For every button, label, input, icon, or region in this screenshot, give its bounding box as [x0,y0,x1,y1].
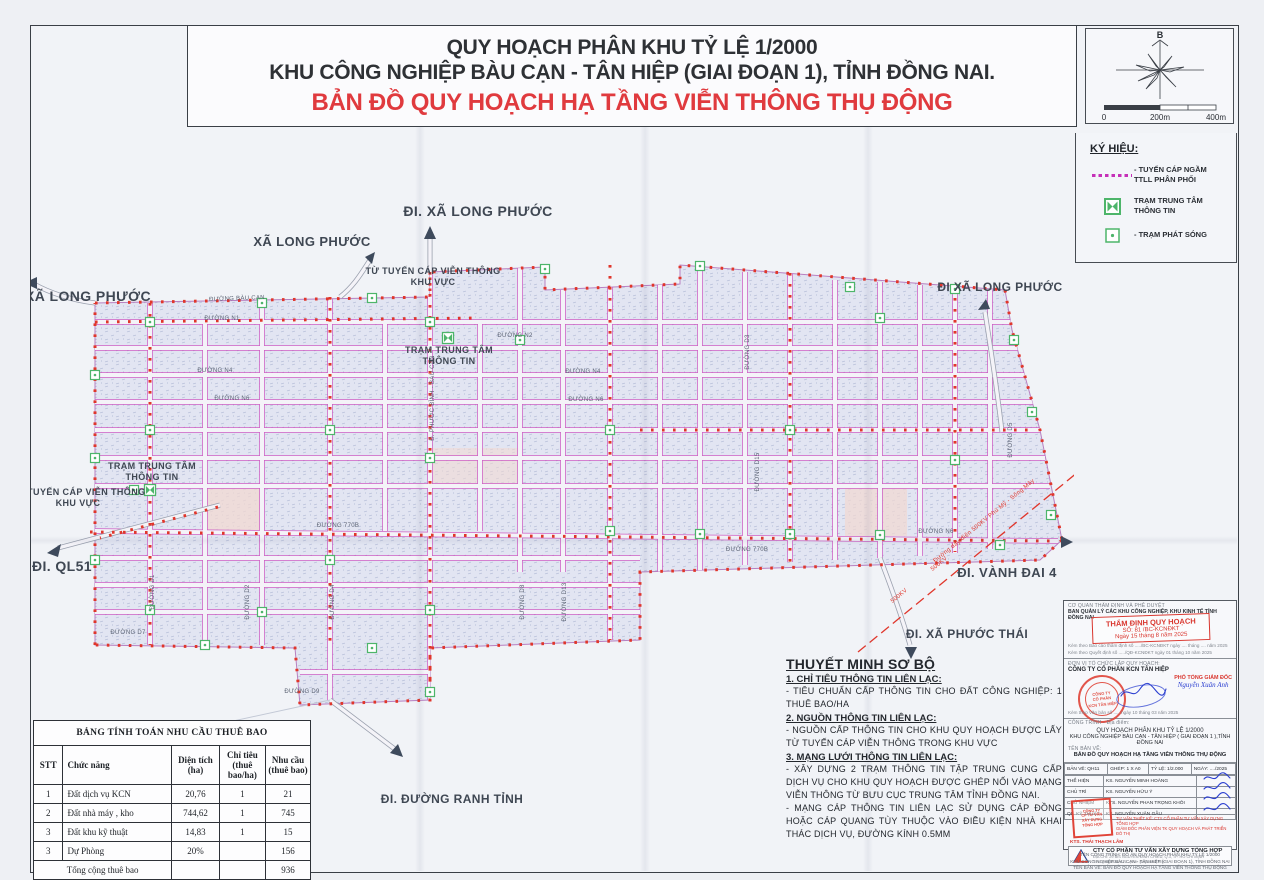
organizer-note: Kèm theo Văn bản số ..... ngày 10 tháng … [1068,710,1178,717]
title-line1: QUY HOẠCH PHÂN KHU TỶ LỆ 1/2000 [447,35,818,60]
cell: 1 [219,785,265,804]
legend-title: KÝ HIỆU: [1090,143,1236,155]
organizer-section: ĐƠN VỊ TỔ CHỨC LẬP QUY HOẠCH: CÔNG TY CỔ… [1064,659,1236,719]
area-label: XÃ LONG PHƯỚC [31,287,151,304]
cell: 20,76 [172,785,219,804]
cell: 156 [266,842,311,861]
cell: 1 [219,804,265,823]
notes-heading-1: 1. CHỈ TIÊU THÔNG TIN LIÊN LẠC: [786,674,1062,685]
central-station-icon [145,485,156,496]
notes-heading-3: 3. MẠNG LƯỚI THÔNG TIN LIÊN LẠC: [786,752,1062,763]
total-value: 936 [266,861,311,880]
svg-text:ĐƯỜNG D9: ĐƯỜNG D9 [284,688,320,695]
drawing-name: BẢN ĐỒ QUY HOẠCH HẠ TẦNG VIỄN THÔNG THỤ … [1068,752,1232,758]
compass-scale-box: B 0 200m 400m [1085,28,1234,124]
staff-role: CHỦ TRÌ [1065,787,1104,798]
legend-item-central-station: TRẠM TRUNG TÂM THÔNG TIN [1090,196,1236,216]
dest-label: ĐI XÃ LONG PHƯỚC [937,279,1062,294]
footer-project-name: TÊN CÔNG TRÌNH: ĐỒ ÁN QUY HOẠCH PHÂN KHU… [1063,852,1237,859]
area-label: XÃ LONG PHƯỚC [253,234,371,249]
legend-item-cable: - TUYẾN CÁP NGẦM TTLL PHÂN PHỐI [1090,165,1236,185]
svg-text:ĐƯỜNG N1: ĐƯỜNG N1 [204,315,240,322]
staff-name: KTS. NGUYỄN PHAN TRỌNG KHÔI [1104,798,1197,809]
cell: Đất khu kỹ thuật [63,823,172,842]
subscriber-demand-table: BẢNG TÍNH TOÁN NHU CẦU THUÊ BAO STT Chức… [33,720,311,880]
cell [219,842,265,861]
svg-text:ĐƯỜNG D13: ĐƯỜNG D13 [561,582,568,621]
footer-drawing-name: TÊN BẢN VẼ: BẢN ĐỒ QUY HOẠCH HẠ TẦNG VIỄ… [1063,865,1237,872]
cell: 1 [219,823,265,842]
consultant-line1: TƯ VẤN THIẾT KẾ: CTY CỔ PHẦN TƯ VẤN XÂY … [1116,816,1232,826]
svg-text:ĐƯỜNG D1: ĐƯỜNG D1 [149,574,156,610]
cell: 20% [172,842,219,861]
svg-text:ĐƯỜNG N6: ĐƯỜNG N6 [568,396,604,403]
cable-source-label: KHU VỰC [411,277,456,287]
col-header-demand: Nhu cầu (thuê bao) [266,746,311,785]
col-header-quota: Chỉ tiêu (thuê bao/ha) [219,746,265,785]
signer-name: Nguyễn Xuân Anh [1174,681,1232,689]
cell: Dự Phòng [63,842,172,861]
scale-tick-200: 200m [1150,113,1170,122]
cable-source-label: KHU VỰC [56,498,101,508]
project-caption: CÔNG TRÌNH - Địa điểm: [1068,720,1232,726]
central-station-icon [1104,198,1121,215]
table-row: 3 Đất khu kỹ thuật 14,83 1 15 [34,823,311,842]
cell: 1 [34,785,63,804]
drawing-title: BẢN ĐỒ QUY HOẠCH HẠ TẦNG VIỄN THÔNG THỤ … [311,89,952,117]
title-block-footer: TÊN CÔNG TRÌNH: ĐỒ ÁN QUY HOẠCH PHÂN KHU… [1063,852,1237,872]
legend-box: KÝ HIỆU: - TUYẾN CÁP NGẦM TTLL PHÂN PHỐI… [1075,133,1237,263]
approval-section: CƠ QUAN THẨM ĐỊNH VÀ PHÊ DUYỆT BAN QUẢN … [1064,601,1236,659]
svg-text:ĐƯỜNG D8: ĐƯỜNG D8 [519,584,526,620]
dest-label: ĐI. XÃ PHƯỚC THÁI [906,626,1028,641]
notes-body-2: - NGUỒN CẤP THÔNG TIN CHO KHU QUY HOẠCH … [786,724,1062,750]
preliminary-notes: THUYẾT MINH SƠ BỘ 1. CHỈ TIÊU THÔNG TIN … [786,656,1062,841]
approval-stamp: THẨM ĐỊNH QUY HOẠCH SỐ: 81 /BC-KCNĐKT Ng… [1092,613,1211,644]
notes-body-3b: - MẠNG CÁP THÔNG TIN LIÊN LẠC SỬ DỤNG CÁ… [786,802,1062,841]
consultant-square-stamp: CÔNG TY CP TƯ VẤN XÂY DỰNG TỔNG HỢP [1071,798,1114,839]
cell: 3 [34,842,63,861]
consultant-signer: KTS. THÁI THẠCH LÂM [1070,840,1232,845]
staff-role: THỂ HIỆN [1065,776,1104,787]
cell: Đất dịch vụ KCN [63,785,172,804]
cell [219,861,265,880]
signature-scribble [1118,681,1168,703]
cell: Đất nhà máy , kho [63,804,172,823]
cell: 744,62 [172,804,219,823]
dest-label: ĐI. XÃ LONG PHƯỚC [403,202,552,219]
planning-map-sheet: Đường dây điện 500KV Phú Mỹ - Sông Mây 5… [0,0,1264,880]
legend-item-label: - TRẠM PHÁT SÓNG [1134,230,1207,240]
svg-text:ĐƯỜNG D7: ĐƯỜNG D7 [110,629,146,636]
central-station-label: TRẠM TRUNG TÂM [405,344,493,355]
notes-heading-2: 2. NGUỒN THÔNG TIN LIÊN LẠC: [786,713,1062,724]
dest-label: ĐI. VÀNH ĐAI 4 [957,565,1057,580]
staff-signatures [1200,771,1234,815]
svg-text:ĐƯỜNG 770B: ĐƯỜNG 770B [317,522,359,529]
table-row: 2 Đất nhà máy , kho 744,62 1 745 [34,804,311,823]
cable-source-label: TỪ TUYẾN CÁP VIỄN THÔNG [31,486,146,497]
central-station-icon [443,333,454,344]
dest-label: ĐI. ĐƯỜNG RANH TỈNH [381,791,523,806]
central-station-label: TRẠM TRUNG TÂM [108,460,196,471]
central-station-label: THÔNG TIN [125,471,178,482]
cell: 745 [266,804,311,823]
approval-notes: Kèm theo Báo cáo thẩm định số ...../BC-K… [1068,643,1234,657]
staff-name: KS. NGUYỄN MINH HOÀNG [1104,776,1197,787]
project-section: CÔNG TRÌNH - Địa điểm: QUY HOẠCH PHÂN KH… [1064,719,1236,763]
legend-item-broadcast-station: - TRẠM PHÁT SÓNG [1090,228,1236,243]
title-line2: KHU CÔNG NGHIỆP BÀU CẠN - TÂN HIỆP (GIAI… [269,60,995,85]
svg-text:ĐƯỜNG D4: ĐƯỜNG D4 [329,584,336,620]
approval-note-1: Kèm theo Báo cáo thẩm định số ...../BC-K… [1068,643,1234,650]
approval-note-2: Kèm theo Quyết định số ...../QĐ-KCNĐKT n… [1068,650,1234,657]
col-header-function: Chức năng [63,746,172,785]
cell: 15 [266,823,311,842]
table-total-row: Tổng cộng thuê bao 936 [34,861,311,880]
dest-label: ĐI. QL51 [32,558,92,574]
consultant-section: CÔNG TY CP TƯ VẤN XÂY DỰNG TỔNG HỢP TƯ V… [1064,815,1236,849]
notes-title: THUYẾT MINH SƠ BỘ [786,656,1062,672]
cell [172,861,219,880]
north-label: B [1157,30,1164,40]
compass-rose-icon: B 0 200m 400m [1086,29,1233,123]
project-line2: KHU CÔNG NGHIỆP BÀU CẠN - TÂN HIỆP ( GIA… [1068,734,1232,746]
cell: 2 [34,804,63,823]
col-header-area: Diện tích (ha) [172,746,219,785]
title-block: CƠ QUAN THẨM ĐỊNH VÀ PHÊ DUYỆT BAN QUẢN … [1063,600,1237,850]
table-row: 3 Dự Phòng 20% 156 [34,842,311,861]
svg-text:ĐƯỜNG N6: ĐƯỜNG N6 [918,528,954,535]
notes-body-3a: - XÂY DỰNG 2 TRẠM THÔNG TIN TẬP TRUNG CU… [786,763,1062,802]
cell: 14,83 [172,823,219,842]
cable-line-swatch [1092,174,1132,177]
cable-source-label: TỪ TUYẾN CÁP VIỄN THÔNG [365,265,500,276]
sheet-no: BẢN VẼ: QH11 [1065,764,1108,775]
organizer-name: CÔNG TY CỔ PHẦN KCN TÂN HIỆP [1068,667,1232,673]
broadcast-station-icon [1105,228,1120,243]
sheet-layout: GHÉP: 1 X A0 [1108,764,1149,775]
svg-text:ĐƯỜNG 770B: ĐƯỜNG 770B [726,546,768,553]
svg-text:ĐƯỜNG N2: ĐƯỜNG N2 [497,332,533,339]
scale-tick-400: 400m [1206,113,1226,122]
central-station-label: THÔNG TIN [422,355,475,366]
svg-text:ĐƯỜNG D5: ĐƯỜNG D5 [1007,422,1014,458]
scale-tick-0: 0 [1102,113,1107,122]
legend-item-label: TRẠM TRUNG TÂM THÔNG TIN [1134,196,1203,216]
total-label: Tổng cộng thuê bao [34,861,172,880]
consultant-line2: GIÁM ĐỐC PHÂN VIỆN TK QUY HOẠCH VÀ PHÁT … [1116,826,1232,836]
svg-text:ĐƯỜNG D15: ĐƯỜNG D15 [754,452,761,491]
scale-bar [1104,105,1216,110]
svg-text:ĐƯỜNG N4: ĐƯỜNG N4 [197,367,233,374]
svg-text:ĐƯỜNG D3: ĐƯỜNG D3 [744,334,751,370]
cell: 21 [266,785,311,804]
svg-text:ĐƯỜNG D2: ĐƯỜNG D2 [244,584,251,620]
table-row: 1 Đất dịch vụ KCN 20,76 1 21 [34,785,311,804]
legend-item-label: - TUYẾN CÁP NGẦM TTLL PHÂN PHỐI [1134,165,1207,185]
sheet-title-box: QUY HOẠCH PHÂN KHU TỶ LỆ 1/2000 KHU CÔNG… [187,25,1077,127]
notes-body-1: - TIÊU CHUẨN CẤP THÔNG TIN CHO ĐẤT CÔNG … [786,685,1062,711]
col-header-stt: STT [34,746,63,785]
staff-name: KS. NGUYỄN HỮU Ý [1104,787,1197,798]
sheet-scale: TỶ LỆ: 1/2.000 [1149,764,1192,775]
cell: 3 [34,823,63,842]
svg-text:ĐƯỜNG N6: ĐƯỜNG N6 [214,395,250,402]
table-title: BẢNG TÍNH TOÁN NHU CẦU THUÊ BAO [34,721,311,746]
svg-text:Đ. PHƯỚC BÌNH - BÀU CẠN: Đ. PHƯỚC BÌNH - BÀU CẠN [429,355,436,441]
svg-text:ĐƯỜNG N4: ĐƯỜNG N4 [565,368,601,375]
